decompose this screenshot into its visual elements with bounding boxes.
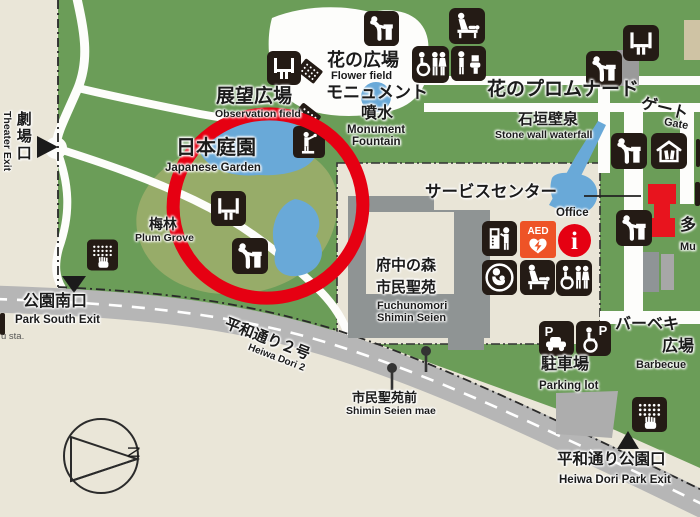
label-heiwa-exit-en: Heiwa Dori Park Exit xyxy=(559,474,671,486)
label-busstop-en: Shimin Seien mae xyxy=(346,406,436,417)
clipped-icon xyxy=(695,182,700,206)
accessible-toilet-icon xyxy=(412,46,449,83)
label-bbq-en: Barbecue xyxy=(636,360,686,372)
label-bbq-jp2: 広場 xyxy=(662,339,694,356)
label-south-exit-en: Park South Exit xyxy=(15,314,100,326)
baby-care-icon xyxy=(449,8,485,44)
label-seien-en2: Shimin Seien xyxy=(377,313,446,325)
label-seien-en1: Fuchunomori xyxy=(377,301,447,313)
nursing-room-icon xyxy=(482,260,517,295)
compass-north-label: N xyxy=(124,446,142,458)
label-station-fragment: u sta. xyxy=(1,332,24,342)
clipped-icon xyxy=(696,139,700,167)
label-parking-en: Parking lot xyxy=(539,380,598,392)
bench-icon xyxy=(623,25,659,61)
label-heiwa-exit-jp: 平和通り公園口 xyxy=(557,452,666,468)
parking-surface xyxy=(556,391,618,438)
drinking-fountain-icon xyxy=(611,133,647,169)
toilet-icon xyxy=(451,46,486,81)
label-japanese-garden-en: Japanese Garden xyxy=(165,162,261,174)
svg-text:P: P xyxy=(545,324,554,339)
label-promenade-jp: 花のプロムナード xyxy=(487,80,639,100)
svg-text:AED: AED xyxy=(527,226,548,237)
label-monument-jp: モニュメント xyxy=(326,84,428,102)
label-observation-field-en: Observation field xyxy=(215,109,301,120)
bench-icon xyxy=(267,51,301,85)
label-fountain-jp: 噴水 xyxy=(361,106,393,123)
garden-pond-lower xyxy=(273,199,322,276)
label-office-en: Office xyxy=(556,207,589,219)
label-japanese-garden-jp: 日本庭園 xyxy=(176,138,256,159)
label-plum-grove-en: Plum Grove xyxy=(135,233,194,244)
storage-shed-icon xyxy=(651,133,687,169)
tactile-map-icon xyxy=(87,240,118,271)
label-bbq-jp1: バーベキ xyxy=(615,317,679,334)
label-seien-jp1: 府中の森 xyxy=(376,258,436,274)
accessible-toilet-icon xyxy=(556,260,592,296)
label-busstop-jp: 市民聖苑前 xyxy=(352,391,417,405)
label-multipurpose-jp: 多 xyxy=(680,218,696,235)
label-monument-en: Monument xyxy=(347,124,405,136)
svg-text:P: P xyxy=(599,323,608,338)
label-seien-jp2: 市民聖苑 xyxy=(376,280,436,296)
tactile-map-icon xyxy=(632,397,667,432)
parking-car-icon: P xyxy=(539,321,574,356)
label-flower-field-jp: 花の広場 xyxy=(327,51,399,70)
bench-icon xyxy=(211,191,246,226)
label-flower-field-en: Flower field xyxy=(331,71,392,83)
baby-care-icon xyxy=(520,260,555,295)
drinking-fountain-icon xyxy=(232,238,268,274)
label-stonewall-jp: 石垣壁泉 xyxy=(518,112,578,128)
label-plum-grove-jp: 梅林 xyxy=(149,217,177,232)
label-service-center-jp: サービスセンター xyxy=(425,184,557,201)
label-parking-jp: 駐車場 xyxy=(541,357,589,374)
label-theater-exit-jp: 劇場口 xyxy=(15,111,31,162)
label-south-exit-jp: 公園南口 xyxy=(23,294,87,311)
vending-machine-icon xyxy=(482,221,517,256)
label-multipurpose-en: Mu xyxy=(680,242,696,254)
label-theater-exit-en: Theater Exit xyxy=(1,111,12,171)
drinking-fountain-icon xyxy=(616,210,652,246)
park-map: AED i P P 劇場口 Theater Exit 展望広場 Observat… xyxy=(0,0,700,517)
label-fountain-en: Fountain xyxy=(352,136,401,148)
label-observation-field-jp: 展望広場 xyxy=(216,87,292,107)
aed-icon: AED xyxy=(520,221,556,258)
svg-text:i: i xyxy=(571,228,578,255)
drinking-fountain-icon xyxy=(364,11,399,46)
information-icon: i xyxy=(558,224,591,257)
label-stonewall-en: Stone wall waterfall xyxy=(495,130,592,141)
accessible-parking-icon: P xyxy=(576,321,611,356)
